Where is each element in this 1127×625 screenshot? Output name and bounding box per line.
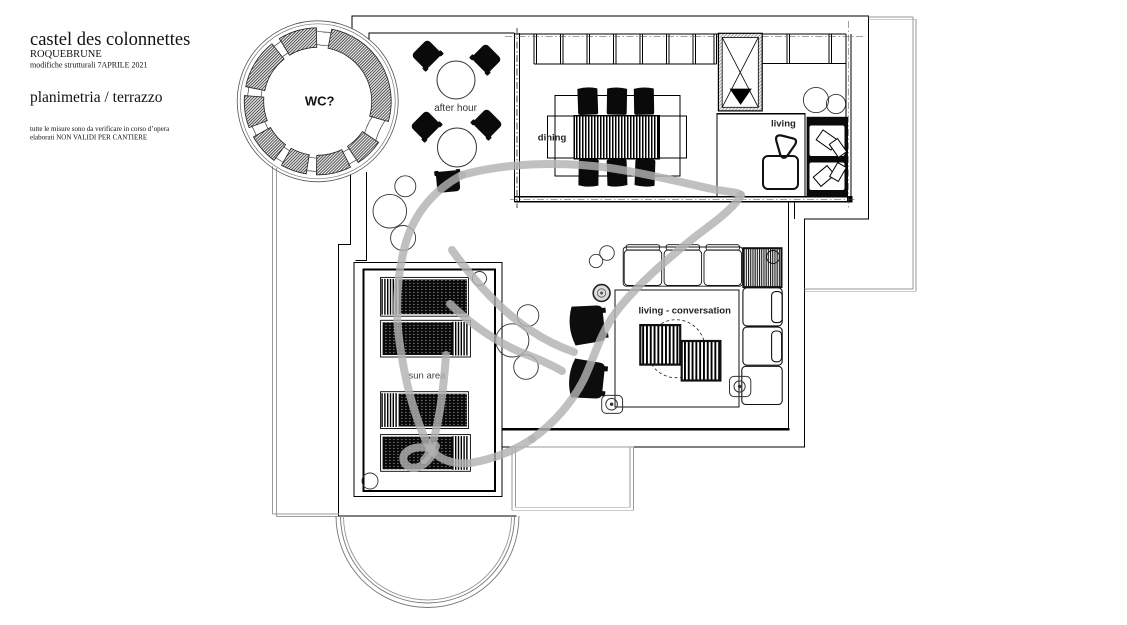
svg-text:dining: dining <box>538 133 567 144</box>
svg-text:ROQUEBRUNE: ROQUEBRUNE <box>30 49 102 60</box>
svg-text:living: living <box>771 119 796 130</box>
svg-text:castel des colonnettes: castel des colonnettes <box>30 30 190 50</box>
svg-text:planimetria / terrazzo: planimetria / terrazzo <box>30 89 163 106</box>
svg-text:tutte le misure sono da verifi: tutte le misure sono da verificare in co… <box>30 125 170 133</box>
svg-text:elaborati NON VALIDI PER CANTI: elaborati NON VALIDI PER CANTIERE <box>30 134 147 142</box>
svg-text:after hour: after hour <box>434 103 477 114</box>
svg-text:modifiche strutturali 7APRILE: modifiche strutturali 7APRILE 2021 <box>30 61 148 70</box>
svg-text:living - conversation: living - conversation <box>639 306 732 317</box>
svg-text:WC?: WC? <box>305 94 335 109</box>
